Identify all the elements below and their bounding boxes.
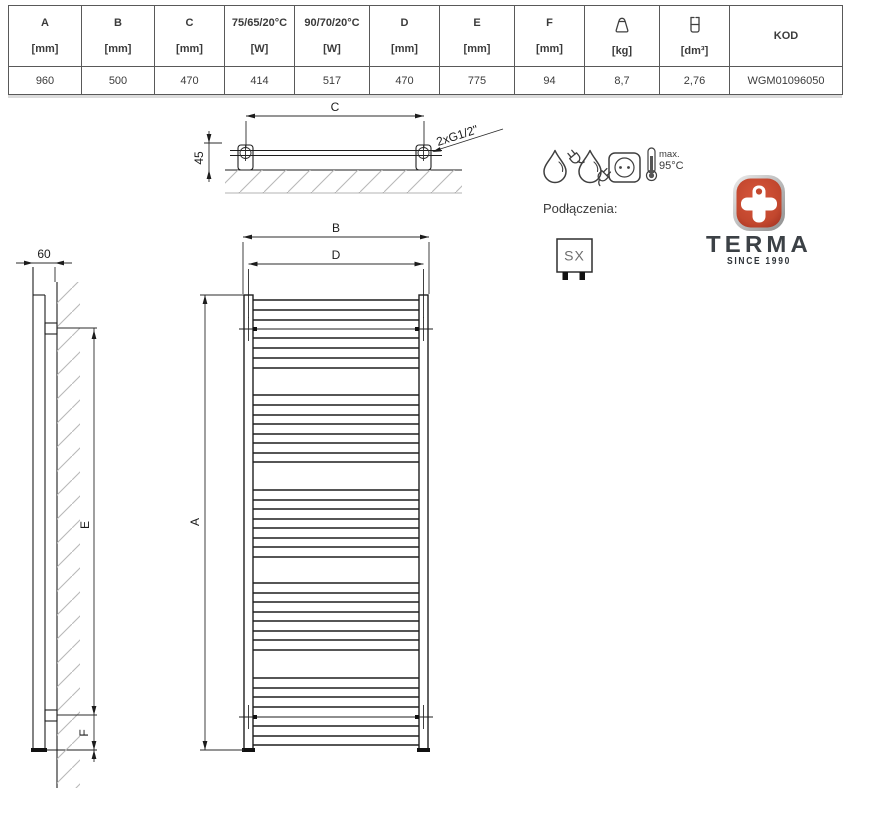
dim-label-45: 45 bbox=[192, 151, 206, 165]
dim-arrow bbox=[92, 741, 97, 750]
thread-label: 2xG1/2" bbox=[435, 122, 480, 149]
technical-drawing: C 45 2xG1/2" 60 bbox=[0, 0, 871, 821]
dim-label-e: E bbox=[78, 521, 92, 529]
dim-arrow bbox=[246, 114, 255, 119]
dim-arrow bbox=[207, 170, 212, 179]
radiator-foot bbox=[31, 748, 47, 752]
feature-icons: max. 95°C bbox=[544, 148, 684, 186]
dim-arrow bbox=[249, 262, 258, 267]
connections-label: Podłączenia: bbox=[543, 201, 617, 216]
connection-type-label: SX bbox=[564, 248, 585, 264]
wall-hatch bbox=[57, 282, 80, 788]
dim-arrow bbox=[92, 330, 97, 339]
radiator-left-column bbox=[244, 295, 253, 750]
thermometer-temp-label: 95°C bbox=[659, 160, 684, 172]
dim-arrow bbox=[420, 235, 429, 240]
water-electric-icon bbox=[566, 149, 601, 183]
logo-tagline: SINCE 1990 bbox=[727, 256, 791, 267]
dim-arrow bbox=[92, 706, 97, 715]
top-view: C 45 2xG1/2" bbox=[192, 100, 503, 193]
dim-arrow bbox=[55, 261, 64, 266]
terma-logo: TERMA SINCE 1990 bbox=[706, 175, 812, 267]
connection-mark bbox=[253, 715, 257, 719]
dim-arrow bbox=[415, 114, 424, 119]
dim-arrow bbox=[207, 134, 212, 143]
connection-mark bbox=[415, 715, 419, 719]
radiator-foot bbox=[417, 748, 430, 752]
dim-label-60: 60 bbox=[37, 247, 51, 261]
side-view: 60 E F bbox=[16, 247, 97, 788]
connection-mark bbox=[253, 327, 257, 331]
dim-label-f: F bbox=[77, 729, 91, 736]
connection-mark bbox=[415, 327, 419, 331]
logo-dot bbox=[756, 188, 762, 194]
thermometer-max-label: max. bbox=[659, 149, 680, 160]
dim-arrow bbox=[243, 235, 252, 240]
front-view: B D A bbox=[188, 221, 433, 752]
radiator-right-column bbox=[419, 295, 428, 750]
dim-arrow bbox=[203, 741, 208, 750]
logo-cross-horizontal bbox=[741, 198, 777, 211]
radiator-rungs bbox=[253, 300, 419, 745]
connection-pin bbox=[580, 272, 586, 280]
water-drop-icon bbox=[544, 151, 566, 183]
dim-arrow bbox=[92, 750, 97, 759]
dim-label-a: A bbox=[188, 518, 202, 526]
dim-arrow bbox=[24, 261, 33, 266]
connection-pin bbox=[563, 272, 569, 280]
connections-section: Podłączenia: SX bbox=[543, 201, 617, 280]
dim-arrow bbox=[203, 295, 208, 304]
logo-wordmark: TERMA bbox=[706, 231, 812, 257]
dim-label-d: D bbox=[332, 248, 341, 262]
dim-label-c: C bbox=[331, 100, 340, 114]
thermometer-icon: max. 95°C bbox=[647, 148, 684, 181]
dim-arrow bbox=[415, 262, 424, 267]
dim-label-b: B bbox=[332, 221, 340, 235]
mounting-bracket bbox=[45, 323, 57, 334]
wall-hatch bbox=[225, 170, 462, 193]
mounting-bracket bbox=[45, 710, 57, 721]
